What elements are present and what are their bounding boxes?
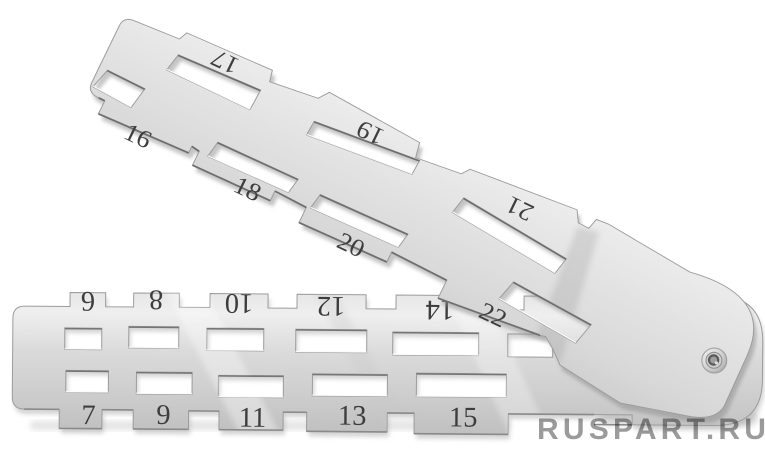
svg-text:11: 11 (239, 403, 267, 434)
svg-text:9: 9 (156, 400, 170, 431)
svg-text:RUSPART.RU: RUSPART.RU (537, 413, 765, 446)
svg-text:12: 12 (317, 290, 346, 321)
svg-text:7: 7 (81, 400, 95, 431)
svg-text:13: 13 (338, 401, 367, 432)
svg-text:8: 8 (149, 284, 163, 315)
svg-text:6: 6 (81, 285, 95, 316)
svg-text:15: 15 (449, 402, 478, 433)
svg-text:10: 10 (225, 287, 254, 318)
